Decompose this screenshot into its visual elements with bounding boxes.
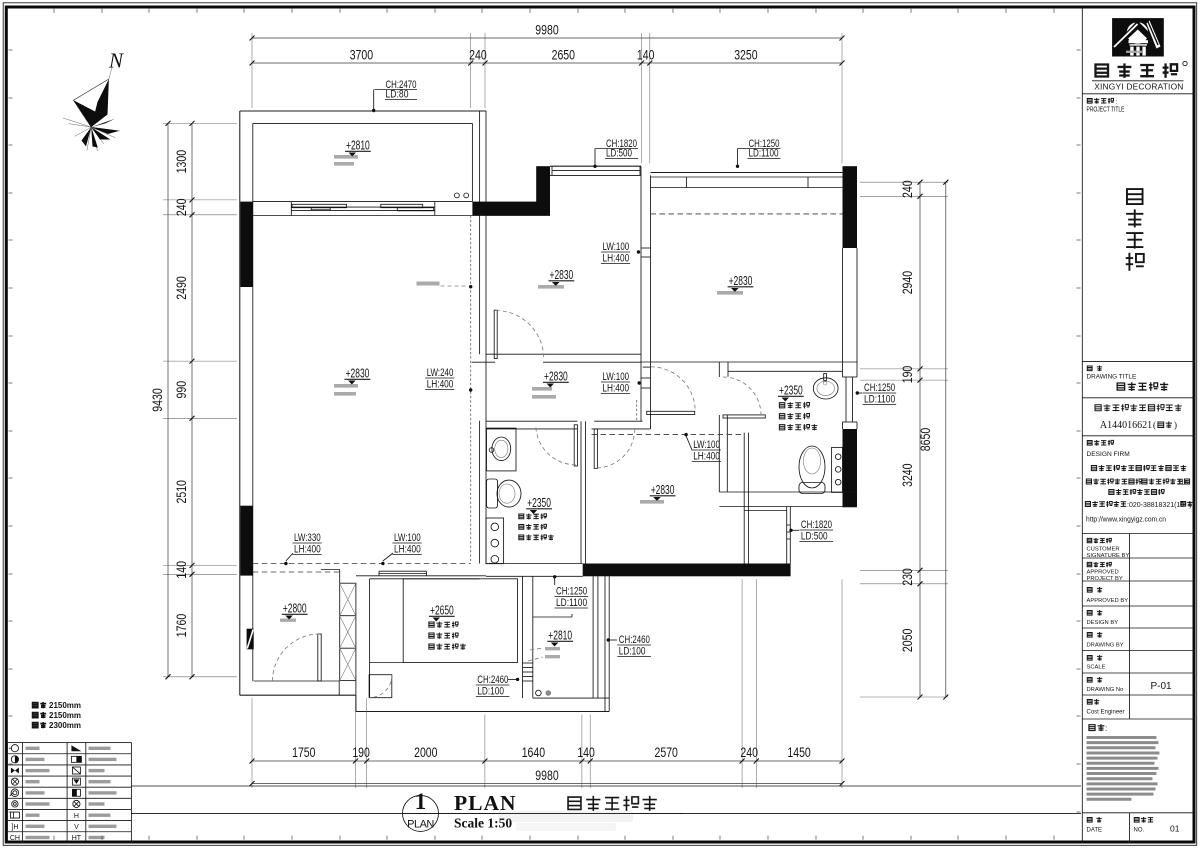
svg-text:LW:100: LW:100 [602, 371, 629, 383]
svg-text:190: 190 [899, 366, 915, 384]
svg-text:CUSTOMER: CUSTOMER [1087, 547, 1120, 553]
svg-text::: : [1105, 724, 1107, 733]
svg-text:APPROVED BY: APPROVED BY [1087, 598, 1129, 604]
svg-text:240: 240 [740, 744, 758, 760]
svg-text:LH:400: LH:400 [427, 379, 454, 391]
svg-text:LD:500: LD:500 [606, 148, 632, 160]
svg-text:8650: 8650 [917, 428, 933, 452]
svg-text:LD:1100: LD:1100 [749, 148, 779, 160]
svg-text:]H: ]H [11, 824, 18, 831]
svg-text:LD:500: LD:500 [801, 531, 828, 543]
svg-text:1760: 1760 [173, 614, 189, 638]
svg-text:1750: 1750 [292, 744, 316, 760]
svg-text:SCALE: SCALE [1087, 665, 1106, 671]
svg-text:LD:1100: LD:1100 [864, 394, 895, 406]
svg-text:DATE: DATE [1087, 828, 1103, 834]
svg-text:+2800: +2800 [283, 602, 307, 616]
svg-text:XINGYI DECORATION: XINGYI DECORATION [1094, 82, 1183, 92]
svg-text:+2830: +2830 [729, 274, 753, 288]
svg-text:190: 190 [352, 744, 370, 760]
svg-text:230: 230 [899, 568, 915, 586]
svg-text:+2650: +2650 [430, 604, 454, 618]
svg-text:APPROVED: APPROVED [1087, 570, 1119, 576]
svg-text:1300: 1300 [173, 150, 189, 174]
svg-text:9980: 9980 [535, 22, 559, 38]
svg-text:CH: CH [10, 835, 20, 842]
svg-text:LD:100: LD:100 [619, 646, 646, 658]
svg-text:2570: 2570 [655, 744, 679, 760]
svg-text:240: 240 [469, 47, 487, 63]
svg-text:DESIGN FIRM: DESIGN FIRM [1087, 451, 1130, 458]
svg-text:PROJECT TITLE: PROJECT TITLE [1087, 105, 1125, 114]
svg-text:DRAWING No: DRAWING No [1087, 687, 1124, 693]
svg-text:LH:400: LH:400 [603, 253, 630, 265]
svg-text:V: V [74, 824, 79, 831]
svg-text:3250: 3250 [734, 47, 758, 63]
svg-text:1: 1 [415, 789, 427, 814]
svg-text:SIGNATURE BY: SIGNATURE BY [1087, 553, 1130, 559]
svg-text:2000: 2000 [414, 744, 438, 760]
svg-text:2150mm: 2150mm [49, 711, 81, 720]
svg-text:LH:400: LH:400 [693, 451, 720, 463]
svg-text:+2830: +2830 [550, 268, 574, 282]
svg-text:+2810: +2810 [346, 139, 370, 153]
svg-text:LH:400: LH:400 [294, 544, 321, 556]
svg-text:CH:1250: CH:1250 [556, 586, 587, 598]
svg-text:LH:400: LH:400 [394, 544, 421, 556]
svg-text:+2830: +2830 [651, 483, 675, 497]
svg-text:2510: 2510 [173, 480, 189, 504]
svg-text:CH:1250: CH:1250 [864, 382, 895, 394]
svg-text:(: ( [1153, 420, 1156, 430]
svg-text:LW:330: LW:330 [294, 532, 321, 544]
svg-text:2490: 2490 [173, 276, 189, 300]
svg-text:A144016621: A144016621 [1100, 420, 1152, 431]
svg-text:240: 240 [173, 198, 189, 216]
svg-text:): ) [1174, 420, 1177, 430]
svg-text:DESIGN BY: DESIGN BY [1087, 620, 1119, 626]
svg-text:1640: 1640 [522, 744, 546, 760]
svg-text:140: 140 [637, 47, 655, 63]
svg-text:LD:80: LD:80 [386, 89, 409, 101]
svg-text:P-01: P-01 [1150, 681, 1172, 692]
svg-text:Cost Engineer: Cost Engineer [1087, 710, 1125, 716]
svg-text:PLAN: PLAN [407, 819, 434, 831]
svg-text:LD:100: LD:100 [477, 686, 504, 698]
svg-text:LW:240: LW:240 [427, 367, 454, 379]
svg-text:CH:2460: CH:2460 [477, 674, 508, 686]
svg-text:+2350: +2350 [527, 496, 551, 510]
svg-text:2940: 2940 [899, 271, 915, 295]
svg-text:NO.: NO. [1134, 828, 1145, 834]
svg-text:2050: 2050 [899, 629, 915, 653]
svg-text:+2830: +2830 [544, 370, 568, 384]
svg-text:): ) [1189, 502, 1191, 509]
svg-text:116: 116 [1177, 480, 1188, 487]
svg-text:3240: 3240 [899, 463, 915, 487]
svg-text:9980: 9980 [535, 767, 559, 783]
svg-text:9430: 9430 [149, 388, 165, 412]
svg-text::: : [1139, 480, 1141, 487]
svg-text:HT: HT [72, 835, 82, 842]
svg-text:+2350: +2350 [779, 384, 803, 398]
svg-text:2300mm: 2300mm [49, 721, 81, 730]
svg-text:http://www.xingyigz.com.cn: http://www.xingyigz.com.cn [1086, 517, 1166, 524]
svg-text:H: H [74, 813, 79, 820]
svg-text:DRAWING TITLE: DRAWING TITLE [1087, 374, 1137, 381]
svg-text:990: 990 [173, 381, 189, 399]
svg-text:CH:2460: CH:2460 [619, 634, 650, 646]
svg-text:PROJECT BY: PROJECT BY [1087, 576, 1123, 582]
svg-text:1450: 1450 [787, 744, 811, 760]
svg-text:2150mm: 2150mm [49, 701, 81, 710]
svg-text:DRAWING BY: DRAWING BY [1087, 643, 1124, 649]
svg-text:LH:400: LH:400 [602, 383, 629, 395]
svg-text:140: 140 [577, 744, 595, 760]
svg-text::020-38818321(10: :020-38818321(10 [1127, 502, 1184, 509]
svg-text:LW:100: LW:100 [394, 532, 421, 544]
svg-text:LW:100: LW:100 [603, 241, 630, 253]
svg-text:LD:1100: LD:1100 [556, 597, 587, 609]
svg-text:3700: 3700 [350, 47, 374, 63]
svg-text:N: N [108, 49, 124, 73]
svg-text:+2830: +2830 [346, 367, 370, 381]
svg-text:LW:100: LW:100 [693, 439, 720, 451]
svg-text:+2810: +2810 [548, 629, 572, 643]
svg-text:2650: 2650 [552, 47, 576, 63]
svg-text:01: 01 [1170, 824, 1180, 834]
svg-text:240: 240 [899, 180, 915, 198]
svg-text:140: 140 [173, 561, 189, 579]
svg-text:CH:1820: CH:1820 [801, 519, 832, 531]
